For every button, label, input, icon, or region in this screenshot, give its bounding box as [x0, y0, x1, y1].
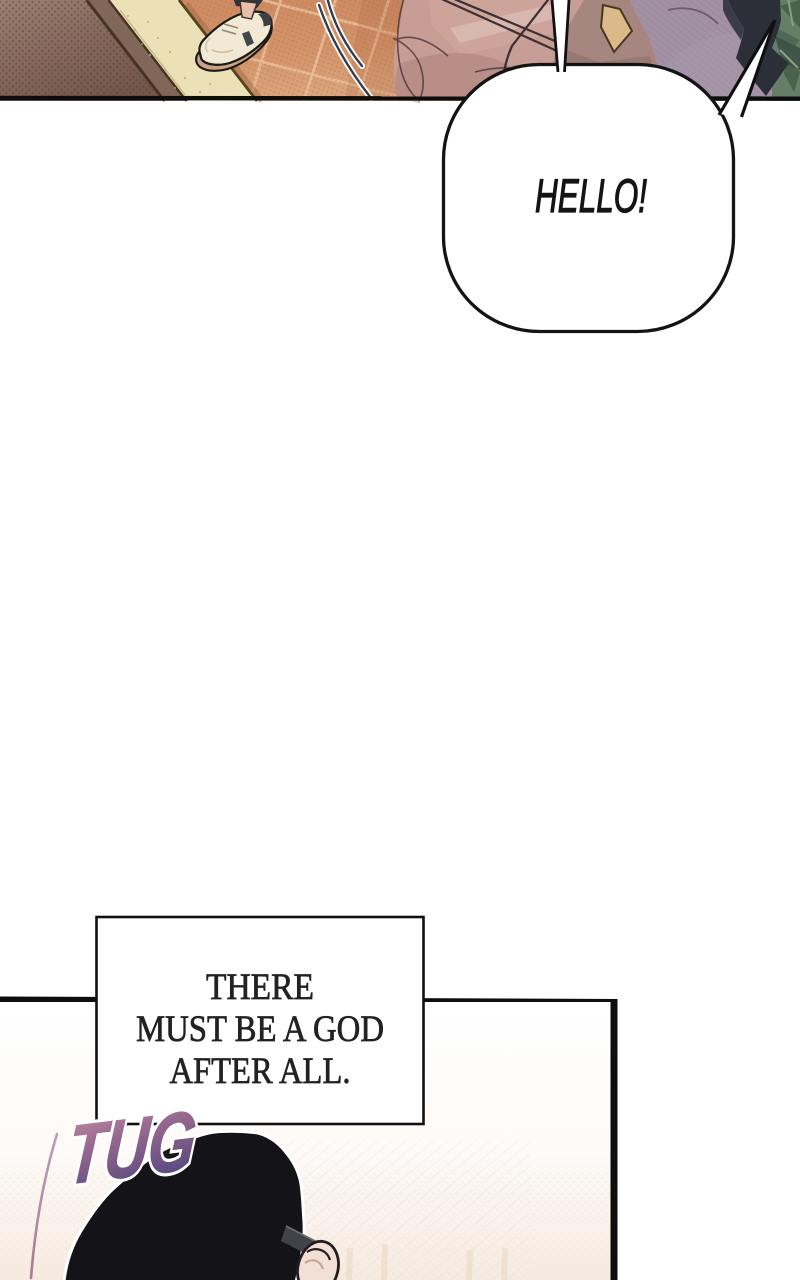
svg-text:MUST BE A GOD: MUST BE A GOD	[136, 1009, 384, 1050]
svg-text:AFTER ALL.: AFTER ALL.	[170, 1051, 351, 1092]
svg-text:TUG: TUG	[64, 1093, 199, 1202]
svg-text:HELLO!: HELLO!	[535, 169, 647, 222]
svg-text:THERE: THERE	[206, 967, 314, 1008]
